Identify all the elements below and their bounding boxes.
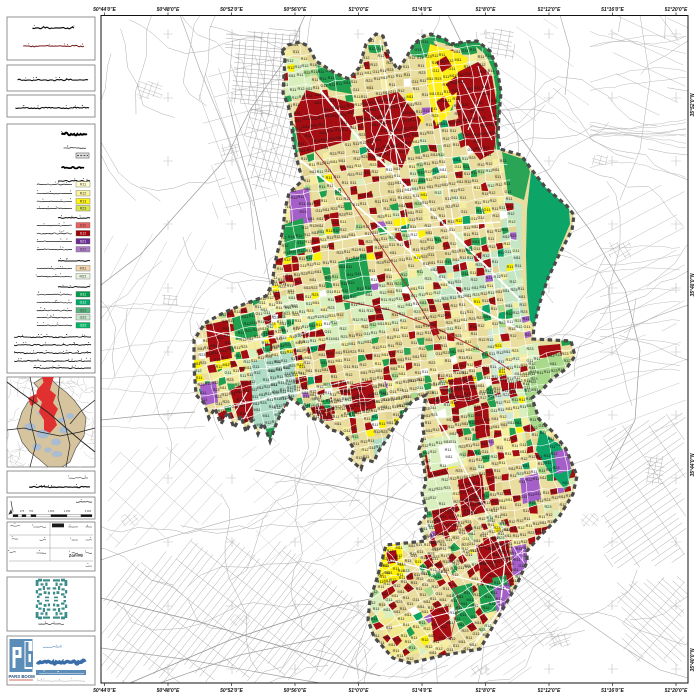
svg-text:M11: M11 <box>519 450 526 454</box>
svg-text:R12: R12 <box>311 117 318 121</box>
svg-text:R11: R11 <box>299 257 306 261</box>
svg-text:R23: R23 <box>444 486 451 490</box>
svg-text:S11: S11 <box>470 271 476 275</box>
svg-text:R12: R12 <box>449 121 456 125</box>
svg-text:R12: R12 <box>384 582 391 586</box>
svg-text:R11: R11 <box>345 398 352 402</box>
svg-text:R12: R12 <box>436 563 443 567</box>
svg-text:R11: R11 <box>344 390 351 394</box>
svg-text:M11: M11 <box>417 605 424 609</box>
svg-text:R11: R11 <box>448 281 455 285</box>
svg-text:G11: G11 <box>445 99 452 103</box>
svg-text:M11: M11 <box>505 498 512 502</box>
svg-text:R12: R12 <box>377 315 384 319</box>
svg-text:R11: R11 <box>430 597 437 601</box>
svg-text:51°0'0"E: 51°0'0"E <box>348 688 369 694</box>
svg-text:R11: R11 <box>238 331 245 335</box>
svg-text:S11: S11 <box>466 399 472 403</box>
svg-text:R12: R12 <box>342 289 349 293</box>
svg-text:G11: G11 <box>521 495 528 499</box>
svg-text:M11: M11 <box>419 301 426 305</box>
svg-text:R23: R23 <box>253 328 260 332</box>
svg-text:51°12'0"E: 51°12'0"E <box>538 688 561 694</box>
svg-text:G11: G11 <box>327 290 334 294</box>
svg-text:R23: R23 <box>474 488 481 492</box>
svg-text:R11: R11 <box>360 202 367 206</box>
svg-text:R23: R23 <box>312 293 319 297</box>
svg-text:M11: M11 <box>369 108 376 112</box>
svg-text:R12: R12 <box>546 513 553 517</box>
svg-text:R11: R11 <box>392 313 399 317</box>
svg-text:R11: R11 <box>430 368 437 372</box>
svg-text:R11: R11 <box>493 553 500 557</box>
svg-text:R23: R23 <box>337 391 344 395</box>
svg-text:R12: R12 <box>353 150 360 154</box>
svg-text:R11: R11 <box>455 326 462 330</box>
svg-text:M11: M11 <box>429 146 436 150</box>
svg-text:S11: S11 <box>317 403 323 407</box>
svg-text:R11: R11 <box>334 175 341 179</box>
svg-text:R23: R23 <box>511 437 518 441</box>
svg-text:R23: R23 <box>279 285 286 289</box>
svg-text:R23: R23 <box>455 524 462 528</box>
svg-text:R11: R11 <box>295 319 302 323</box>
svg-text:G11: G11 <box>449 67 456 71</box>
svg-text:M11: M11 <box>375 369 382 373</box>
svg-text:R12: R12 <box>391 397 398 401</box>
svg-text:R12: R12 <box>360 363 367 367</box>
svg-text:R12: R12 <box>364 171 371 175</box>
svg-text:R12: R12 <box>308 271 315 275</box>
svg-text:R11: R11 <box>548 437 555 441</box>
svg-text:R23: R23 <box>489 574 496 578</box>
svg-text:R12: R12 <box>397 350 404 354</box>
svg-text:R11: R11 <box>440 464 447 468</box>
svg-text:R11: R11 <box>379 603 386 607</box>
svg-text:M11: M11 <box>500 513 507 517</box>
svg-text:R11: R11 <box>340 166 347 170</box>
svg-text:R11: R11 <box>448 389 455 393</box>
svg-text:R11: R11 <box>491 99 498 103</box>
svg-text:35°52'0"N: 35°52'0"N <box>690 93 696 116</box>
svg-text:R11: R11 <box>413 625 420 629</box>
svg-text:R11: R11 <box>510 552 517 556</box>
svg-text:R12: R12 <box>276 337 283 341</box>
svg-text:R11: R11 <box>420 79 427 83</box>
svg-text:R12: R12 <box>332 114 339 118</box>
svg-text:R11: R11 <box>403 380 410 384</box>
svg-text:M11: M11 <box>446 621 453 625</box>
svg-text:R12: R12 <box>426 645 433 649</box>
svg-text:R11: R11 <box>277 375 284 379</box>
svg-text:R11: R11 <box>356 333 363 337</box>
svg-text:G11: G11 <box>344 429 351 433</box>
svg-text:M11: M11 <box>338 159 345 163</box>
svg-text:R23: R23 <box>328 306 335 310</box>
svg-text:R11: R11 <box>326 176 333 180</box>
svg-text:R12: R12 <box>389 352 396 356</box>
svg-text:G31: G31 <box>80 316 87 320</box>
svg-text:S11: S11 <box>475 255 481 259</box>
svg-text:M11: M11 <box>441 183 448 187</box>
svg-text:R11: R11 <box>435 238 442 242</box>
svg-text:R11: R11 <box>441 554 448 558</box>
svg-text:M11: M11 <box>323 215 330 219</box>
svg-text:R11: R11 <box>441 570 448 574</box>
svg-text:R11: R11 <box>393 105 400 109</box>
svg-text:R11: R11 <box>536 455 543 459</box>
svg-text:R23: R23 <box>366 240 373 244</box>
svg-text:R11: R11 <box>282 329 289 333</box>
svg-text:M11: M11 <box>430 268 437 272</box>
svg-text:R11: R11 <box>347 381 354 385</box>
svg-text:R11: R11 <box>472 563 479 567</box>
svg-text:M11: M11 <box>372 385 379 389</box>
svg-text:R12: R12 <box>420 565 427 569</box>
svg-text:R11: R11 <box>431 216 438 220</box>
svg-text:R23: R23 <box>405 196 412 200</box>
svg-text:R11: R11 <box>475 451 482 455</box>
svg-text:M11: M11 <box>373 238 380 242</box>
svg-text:G11: G11 <box>433 69 440 73</box>
svg-text:R12: R12 <box>477 420 484 424</box>
svg-text:M11: M11 <box>466 598 473 602</box>
svg-text:S11: S11 <box>437 260 443 264</box>
svg-text:R12: R12 <box>336 297 343 301</box>
svg-text:R11: R11 <box>443 305 450 309</box>
svg-text:R11: R11 <box>290 88 297 92</box>
svg-text:M11: M11 <box>426 77 433 81</box>
svg-text:R11: R11 <box>539 515 546 519</box>
svg-text:R12: R12 <box>487 388 494 392</box>
svg-text:M11: M11 <box>299 377 306 381</box>
svg-text:R11: R11 <box>434 284 441 288</box>
svg-text:S11: S11 <box>410 225 416 229</box>
svg-text:M11: M11 <box>460 318 467 322</box>
svg-text:R12: R12 <box>470 467 477 471</box>
svg-text:R12: R12 <box>429 488 436 492</box>
svg-text:S11: S11 <box>449 515 455 519</box>
svg-text:R12: R12 <box>450 477 457 481</box>
svg-text:R12: R12 <box>360 255 367 259</box>
svg-text:R11: R11 <box>349 334 356 338</box>
svg-text:S11: S11 <box>466 526 472 530</box>
svg-text:R11: R11 <box>413 87 420 91</box>
svg-text:R11: R11 <box>379 330 386 334</box>
svg-text:R23: R23 <box>396 600 403 604</box>
svg-text:R12: R12 <box>249 380 256 384</box>
svg-text:R11: R11 <box>355 411 362 415</box>
svg-text:R12: R12 <box>288 291 295 295</box>
svg-text:R12: R12 <box>509 220 516 224</box>
svg-text:R12: R12 <box>333 229 340 233</box>
svg-text:R11: R11 <box>475 201 482 205</box>
svg-text:R12: R12 <box>216 365 223 369</box>
svg-text:R12: R12 <box>352 435 359 439</box>
svg-text:R11: R11 <box>472 179 479 183</box>
svg-text:R11: R11 <box>406 257 413 261</box>
svg-text:R12: R12 <box>422 638 429 642</box>
svg-text:G21: G21 <box>80 309 87 313</box>
svg-text:M11: M11 <box>448 529 455 533</box>
svg-text:S11: S11 <box>413 194 419 198</box>
svg-text:M11: M11 <box>314 270 321 274</box>
svg-text:R23: R23 <box>429 361 436 365</box>
svg-text:R11: R11 <box>243 389 250 393</box>
svg-text:R12: R12 <box>499 549 506 553</box>
svg-text:R12: R12 <box>284 258 291 262</box>
svg-text:M11: M11 <box>335 351 342 355</box>
svg-text:S11: S11 <box>200 391 206 395</box>
svg-text:R12: R12 <box>342 343 349 347</box>
svg-text:R11: R11 <box>489 602 496 606</box>
svg-text:R11: R11 <box>330 260 337 264</box>
svg-text:R23: R23 <box>265 355 272 359</box>
svg-text:G11: G11 <box>276 301 283 305</box>
svg-text:R23: R23 <box>498 536 505 540</box>
svg-text:R11: R11 <box>481 525 488 529</box>
svg-text:R12: R12 <box>504 556 511 560</box>
svg-text:R11: R11 <box>344 358 351 362</box>
svg-text:M11: M11 <box>429 651 436 655</box>
svg-text:R23: R23 <box>551 369 558 373</box>
svg-text:R12: R12 <box>436 647 443 651</box>
svg-text:R11: R11 <box>396 128 403 132</box>
svg-text:M11: M11 <box>271 353 278 357</box>
svg-text:M11: M11 <box>456 431 463 435</box>
svg-text:R12: R12 <box>419 347 426 351</box>
svg-text:M11: M11 <box>539 476 546 480</box>
svg-text:R12: R12 <box>456 219 463 223</box>
svg-text:R11: R11 <box>507 366 514 370</box>
svg-text:R11: R11 <box>361 95 368 99</box>
svg-text:M11: M11 <box>377 107 384 111</box>
svg-text:R11: R11 <box>262 341 269 345</box>
svg-text:R12: R12 <box>489 530 496 534</box>
svg-text:S11: S11 <box>462 157 468 161</box>
svg-text:R12: R12 <box>463 378 470 382</box>
svg-text:S11: S11 <box>495 175 501 179</box>
svg-text:R23: R23 <box>370 163 377 167</box>
svg-text:G11: G11 <box>505 190 512 194</box>
svg-text:R12: R12 <box>525 389 532 393</box>
svg-text:R12: R12 <box>432 585 439 589</box>
svg-text:R12: R12 <box>491 455 498 459</box>
svg-text:R11: R11 <box>410 172 417 176</box>
svg-text:R11: R11 <box>414 256 421 260</box>
svg-text:S11: S11 <box>482 299 488 303</box>
svg-text:S11: S11 <box>417 56 423 60</box>
svg-text:R12: R12 <box>455 112 462 116</box>
svg-text:R11: R11 <box>467 489 474 493</box>
svg-text:M11: M11 <box>401 226 408 230</box>
svg-text:M11: M11 <box>385 221 392 225</box>
svg-text:R12: R12 <box>212 381 219 385</box>
svg-text:R11: R11 <box>440 336 447 340</box>
svg-text:R23: R23 <box>359 133 366 137</box>
svg-text:S11: S11 <box>431 623 437 627</box>
svg-text:R11: R11 <box>340 381 347 385</box>
svg-text:R11: R11 <box>499 370 506 374</box>
svg-text:R11: R11 <box>424 162 431 166</box>
svg-text:R11: R11 <box>482 353 489 357</box>
svg-text:R12: R12 <box>473 398 480 402</box>
svg-text:R11: R11 <box>286 220 293 224</box>
svg-text:R12: R12 <box>495 229 502 233</box>
svg-text:R12: R12 <box>418 171 425 175</box>
svg-text:M11: M11 <box>452 258 459 262</box>
svg-text:R12: R12 <box>304 233 311 237</box>
svg-text:M11: M11 <box>389 251 396 255</box>
svg-text:375: 375 <box>20 509 25 513</box>
svg-text:R11: R11 <box>294 385 301 389</box>
svg-text:R11: R11 <box>393 413 400 417</box>
svg-text:M11: M11 <box>483 315 490 319</box>
svg-text:R11: R11 <box>469 459 476 463</box>
svg-text:R12: R12 <box>469 421 476 425</box>
svg-text:R12: R12 <box>353 396 360 400</box>
svg-text:M11: M11 <box>235 390 242 394</box>
svg-text:R12: R12 <box>384 207 391 211</box>
svg-text:M11: M11 <box>458 640 465 644</box>
svg-text:R11: R11 <box>543 491 550 495</box>
svg-text:S11: S11 <box>408 264 414 268</box>
svg-text:R12: R12 <box>473 443 480 447</box>
svg-text:R12: R12 <box>370 377 377 381</box>
svg-text:R12: R12 <box>295 65 302 69</box>
svg-text:R11: R11 <box>298 371 305 375</box>
svg-text:R12: R12 <box>297 363 304 367</box>
svg-text:R12: R12 <box>382 564 389 568</box>
svg-text:R12: R12 <box>369 101 376 105</box>
svg-text:M11: M11 <box>238 404 245 408</box>
svg-text:R12: R12 <box>286 277 293 281</box>
svg-text:R23: R23 <box>494 526 501 530</box>
svg-text:R23: R23 <box>489 131 496 135</box>
svg-text:R12: R12 <box>391 144 398 148</box>
svg-text:M11: M11 <box>305 87 312 91</box>
svg-text:R12: R12 <box>310 390 317 394</box>
svg-text:R23: R23 <box>480 70 487 74</box>
svg-text:R11: R11 <box>386 383 393 387</box>
svg-text:R11: R11 <box>278 278 285 282</box>
svg-text:R11: R11 <box>482 403 489 407</box>
svg-text:R11: R11 <box>533 522 540 526</box>
svg-text:R11: R11 <box>459 303 466 307</box>
svg-text:S11: S11 <box>251 359 257 363</box>
svg-text:M11: M11 <box>320 138 327 142</box>
svg-text:R12: R12 <box>443 560 450 564</box>
svg-text:R23: R23 <box>452 250 459 254</box>
svg-text:S11: S11 <box>406 204 412 208</box>
svg-text:R11: R11 <box>439 160 446 164</box>
svg-text:M11: M11 <box>497 587 504 591</box>
svg-text:R12: R12 <box>379 284 386 288</box>
svg-text:R11: R11 <box>309 163 316 167</box>
svg-text:R11: R11 <box>504 438 511 442</box>
svg-text:R11: R11 <box>255 305 262 309</box>
svg-text:M11: M11 <box>505 407 512 411</box>
svg-text:S11: S11 <box>464 226 470 230</box>
svg-text:M11: M11 <box>219 386 226 390</box>
svg-text:R23: R23 <box>264 385 271 389</box>
svg-text:M11: M11 <box>429 306 436 310</box>
svg-text:R11: R11 <box>311 70 318 74</box>
svg-text:R11: R11 <box>465 437 472 441</box>
svg-text:1,500: 1,500 <box>48 509 55 513</box>
svg-text:M11: M11 <box>306 202 313 206</box>
svg-text:R11: R11 <box>467 256 474 260</box>
svg-text:R11: R11 <box>488 291 495 295</box>
svg-text:S22: S22 <box>80 248 86 252</box>
svg-text:G11: G11 <box>303 395 310 399</box>
svg-text:M11: M11 <box>244 366 251 370</box>
svg-text:R12: R12 <box>346 257 353 261</box>
svg-text:R12: R12 <box>362 325 369 329</box>
svg-text:R23: R23 <box>428 552 435 556</box>
svg-text:R11: R11 <box>377 376 384 380</box>
svg-text:G11: G11 <box>451 136 458 140</box>
svg-text:R12: R12 <box>481 124 488 128</box>
svg-text:R12: R12 <box>348 111 355 115</box>
svg-text:M11: M11 <box>304 356 311 360</box>
svg-text:R12: R12 <box>481 292 488 296</box>
svg-text:S11: S11 <box>312 239 318 243</box>
svg-text:R23: R23 <box>320 238 327 242</box>
svg-text:R11: R11 <box>399 312 406 316</box>
svg-text:R11: R11 <box>441 625 448 629</box>
svg-text:R23: R23 <box>476 263 483 267</box>
svg-text:G11: G11 <box>325 330 332 334</box>
svg-text:R11: R11 <box>269 303 276 307</box>
svg-text:R11: R11 <box>299 340 306 344</box>
svg-text:R11: R11 <box>317 170 324 174</box>
svg-text:R12: R12 <box>370 323 377 327</box>
svg-text:R12: R12 <box>380 575 387 579</box>
svg-text:M11: M11 <box>321 146 328 150</box>
svg-text:R23: R23 <box>215 395 222 399</box>
svg-text:R12: R12 <box>504 400 511 404</box>
svg-text:R11: R11 <box>510 474 517 478</box>
svg-text:G11: G11 <box>412 80 419 84</box>
svg-text:R23: R23 <box>456 469 463 473</box>
svg-text:R12: R12 <box>396 297 403 301</box>
svg-text:M11: M11 <box>309 170 316 174</box>
svg-text:R11: R11 <box>364 417 371 421</box>
svg-text:M11: M11 <box>376 154 383 158</box>
svg-text:S11: S11 <box>305 295 311 299</box>
svg-text:R23: R23 <box>499 321 506 325</box>
svg-text:G11: G11 <box>436 352 443 356</box>
svg-text:S12: S12 <box>80 232 86 236</box>
svg-text:R11: R11 <box>488 440 495 444</box>
svg-text:M11: M11 <box>229 362 236 366</box>
svg-text:R12: R12 <box>340 327 347 331</box>
svg-text:R23: R23 <box>370 209 377 213</box>
svg-text:R11: R11 <box>222 356 229 360</box>
svg-text:G11: G11 <box>355 272 362 276</box>
svg-text:R12: R12 <box>337 399 344 403</box>
svg-text:M11: M11 <box>425 429 432 433</box>
svg-text:R23: R23 <box>459 445 466 449</box>
svg-text:R23: R23 <box>488 395 495 399</box>
svg-text:R11: R11 <box>389 129 396 133</box>
svg-text:G11: G11 <box>80 293 87 297</box>
svg-text:R12: R12 <box>435 191 442 195</box>
svg-text:R12: R12 <box>508 212 515 216</box>
svg-text:G11: G11 <box>428 253 435 257</box>
svg-text:M11: M11 <box>387 290 394 294</box>
